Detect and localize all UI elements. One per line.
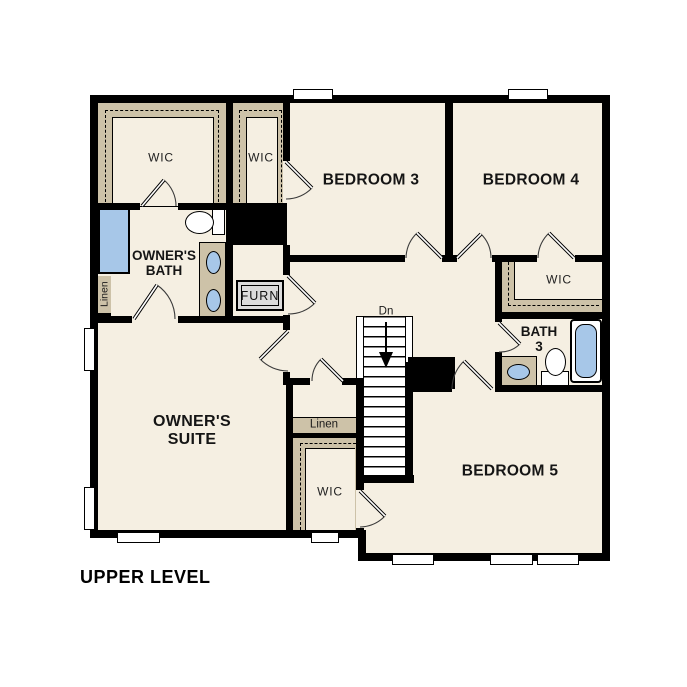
door-bed3-wic	[286, 162, 312, 199]
plan-title: UPPER LEVEL	[80, 567, 211, 588]
floor-plan: Linen FURN	[0, 0, 687, 687]
door-furnace	[288, 276, 315, 314]
owners-wic-label: WIC	[148, 151, 174, 164]
owners-suite-label: OWNER'S SUITE	[153, 413, 231, 449]
bath3-label: BATH 3	[521, 324, 558, 354]
bedroom5-label: BEDROOM 5	[462, 462, 559, 479]
linen-center-label: Linen	[310, 419, 338, 432]
stairs-dn-label: Dn	[379, 306, 394, 319]
door-bath3	[499, 323, 520, 352]
bedroom4-label: BEDROOM 4	[483, 171, 580, 188]
bedroom3-label: BEDROOM 3	[323, 171, 420, 188]
door-owners-wic	[142, 180, 176, 206]
owners-bath-label: OWNER'S BATH	[132, 248, 196, 278]
door-owners-suite	[260, 331, 288, 371]
door-owners-bath	[134, 285, 175, 319]
stairs-down-arrow-icon	[379, 322, 393, 368]
door-bedroom4	[457, 234, 491, 258]
door-linen-center	[312, 359, 343, 381]
bed3-wic-label: WIC	[248, 151, 274, 164]
bed4-wic-label: WIC	[546, 273, 572, 286]
door-bedroom5	[452, 361, 492, 389]
bed5-wic-label: WIC	[317, 485, 343, 498]
door-bed4-wic	[538, 233, 574, 258]
door-bed5-wic	[360, 491, 385, 527]
door-bedroom3	[406, 233, 442, 258]
